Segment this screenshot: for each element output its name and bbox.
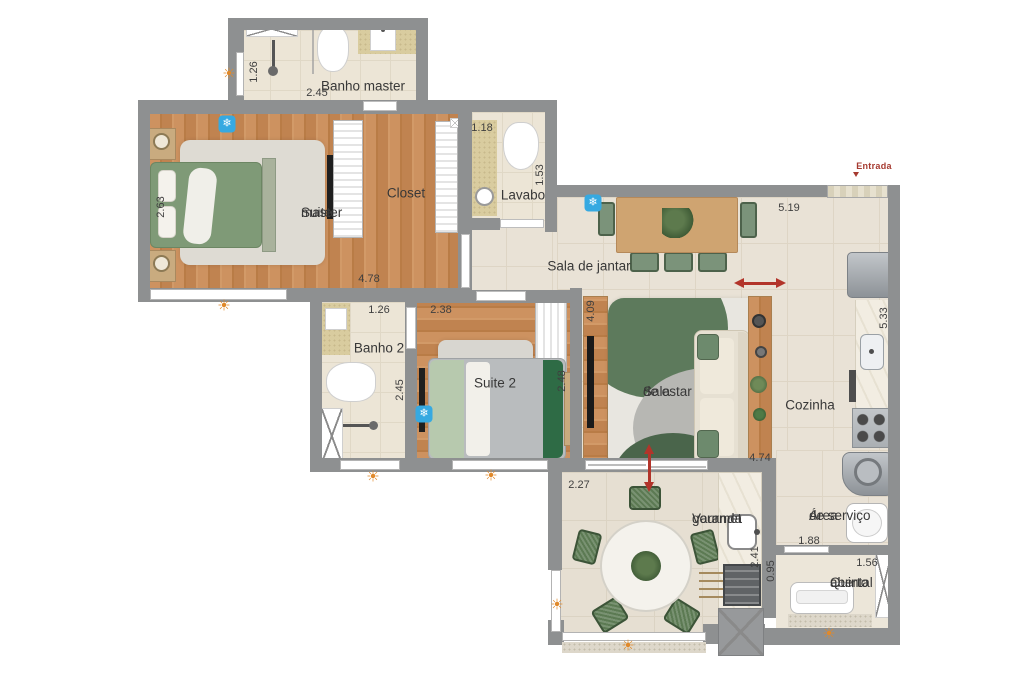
- label-line: de estar: [643, 384, 692, 401]
- window: [236, 52, 244, 96]
- wall: [548, 458, 562, 570]
- arrow-head-down-icon: [644, 482, 654, 492]
- dimension: 1.26: [248, 61, 260, 82]
- sun-icon: ☀: [366, 470, 379, 485]
- faucet: [754, 529, 760, 535]
- room-label-suite-2: Suite 2: [474, 376, 516, 393]
- dining-chair: [630, 252, 659, 272]
- shower-head: [268, 66, 278, 76]
- shower-head: [369, 421, 378, 430]
- skewer: [699, 572, 723, 574]
- sofa-pillow: [697, 430, 719, 458]
- wall: [310, 288, 322, 472]
- floor-plan: Entrada ☀ ☀ ☀ ☀ ☀ ☀ ☀ ❄ ❄ ❄ Banho master…: [0, 0, 1024, 683]
- door: [784, 546, 829, 553]
- shaft: [718, 608, 764, 656]
- sliding-door-panel: [588, 464, 646, 466]
- sun-icon: ☀: [822, 627, 835, 642]
- stove: [852, 408, 890, 448]
- sink: [325, 308, 347, 330]
- decor-plant: [753, 408, 766, 421]
- entry-label: Entrada: [856, 161, 892, 171]
- shower-tray: [321, 408, 343, 464]
- faucet: [869, 349, 874, 354]
- room-label-cozinha: Cozinha: [785, 398, 835, 415]
- dimension: 2.38: [430, 304, 451, 316]
- label-line: master: [301, 205, 342, 222]
- flow-arrow-vertical: [648, 453, 651, 483]
- table-plant: [631, 551, 661, 581]
- arrow-head-left-icon: [734, 278, 744, 288]
- wall: [570, 288, 582, 472]
- bed-pillows: [430, 360, 464, 458]
- wall: [228, 18, 428, 30]
- dimension: 4.74: [749, 452, 770, 464]
- door: [476, 291, 526, 301]
- room-label-closet: Closet: [387, 186, 425, 203]
- toilet: [326, 362, 376, 402]
- door: [406, 307, 416, 349]
- flow-arrow-horizontal: [744, 282, 776, 285]
- door: [363, 101, 397, 111]
- entry-door-sill: [827, 185, 888, 198]
- toilet: [503, 122, 539, 170]
- dining-chair: [664, 252, 693, 272]
- room-label-banho-master: Banho master: [321, 79, 405, 96]
- skewer: [699, 580, 723, 582]
- ac-icon: ❄: [416, 406, 433, 423]
- dimension: 2.41: [749, 546, 761, 567]
- ac-icon: ❄: [585, 195, 602, 212]
- wall: [888, 185, 900, 645]
- room-label-lavabo: Lavabo: [501, 188, 545, 205]
- decor-plant: [750, 376, 767, 393]
- window: [452, 460, 548, 470]
- dimension: 2.45: [394, 379, 406, 400]
- dimension: 1.18: [471, 122, 492, 134]
- label-line: de serviço: [809, 508, 871, 525]
- dimension: 0.95: [765, 560, 777, 581]
- dimension: 1.88: [798, 535, 819, 547]
- label-line: gourmet: [692, 511, 742, 528]
- wall: [458, 100, 557, 112]
- wardrobe: [435, 121, 458, 233]
- dimension: 4.78: [358, 273, 379, 285]
- dimension: 1.56: [856, 557, 877, 569]
- round-sink: [475, 187, 494, 206]
- counter-edge: [849, 370, 856, 402]
- door: [500, 219, 544, 228]
- door: [461, 234, 470, 288]
- dimension: 5.19: [778, 202, 799, 214]
- dimension: 1.26: [368, 304, 389, 316]
- dimension: 2.27: [568, 479, 589, 491]
- dimension: 2.45: [306, 87, 327, 99]
- room-label-sala-jantar: Sala de jantar: [547, 259, 630, 276]
- dimension: 1.53: [534, 164, 546, 185]
- skewer: [699, 596, 723, 598]
- dimension: 2.63: [155, 196, 167, 217]
- toilet: [317, 26, 349, 72]
- dining-chair: [698, 252, 727, 272]
- fridge: [847, 252, 893, 298]
- arrow-head-right-icon: [776, 278, 786, 288]
- sliding-door-panel: [648, 466, 706, 468]
- tv: [587, 336, 594, 428]
- ac-icon: ❄: [219, 116, 236, 133]
- sun-icon: ☀: [550, 598, 563, 613]
- dimension: 5.33: [878, 307, 890, 328]
- arrow-head-up-icon: [644, 444, 654, 454]
- sun-icon: ☀: [217, 299, 230, 314]
- bench-seat: [796, 590, 848, 604]
- wall: [472, 218, 500, 230]
- room-label-banho-2: Banho 2: [354, 341, 404, 358]
- sun-icon: ☀: [222, 67, 235, 82]
- dimension: 4.09: [585, 300, 597, 321]
- label-line: aberto: [830, 575, 868, 592]
- grill: [723, 564, 761, 606]
- wall: [138, 100, 150, 302]
- table-plant: [662, 208, 694, 238]
- lamp: [153, 133, 170, 150]
- shower-glass: [312, 30, 314, 74]
- wall: [545, 100, 557, 232]
- lamp: [153, 255, 170, 272]
- dining-chair: [740, 202, 757, 238]
- headboard: [262, 158, 276, 252]
- washer-door: [854, 458, 882, 486]
- decor-pot: [755, 346, 767, 358]
- wall: [138, 100, 472, 114]
- skewer: [699, 588, 723, 590]
- sofa-pillow: [697, 334, 719, 360]
- entry-arrow-icon: [853, 172, 859, 177]
- sun-icon: ☀: [621, 639, 634, 654]
- decor-pot: [752, 314, 766, 328]
- sun-icon: ☀: [484, 469, 497, 484]
- dimension: 2.48: [556, 370, 568, 391]
- wall: [762, 458, 776, 618]
